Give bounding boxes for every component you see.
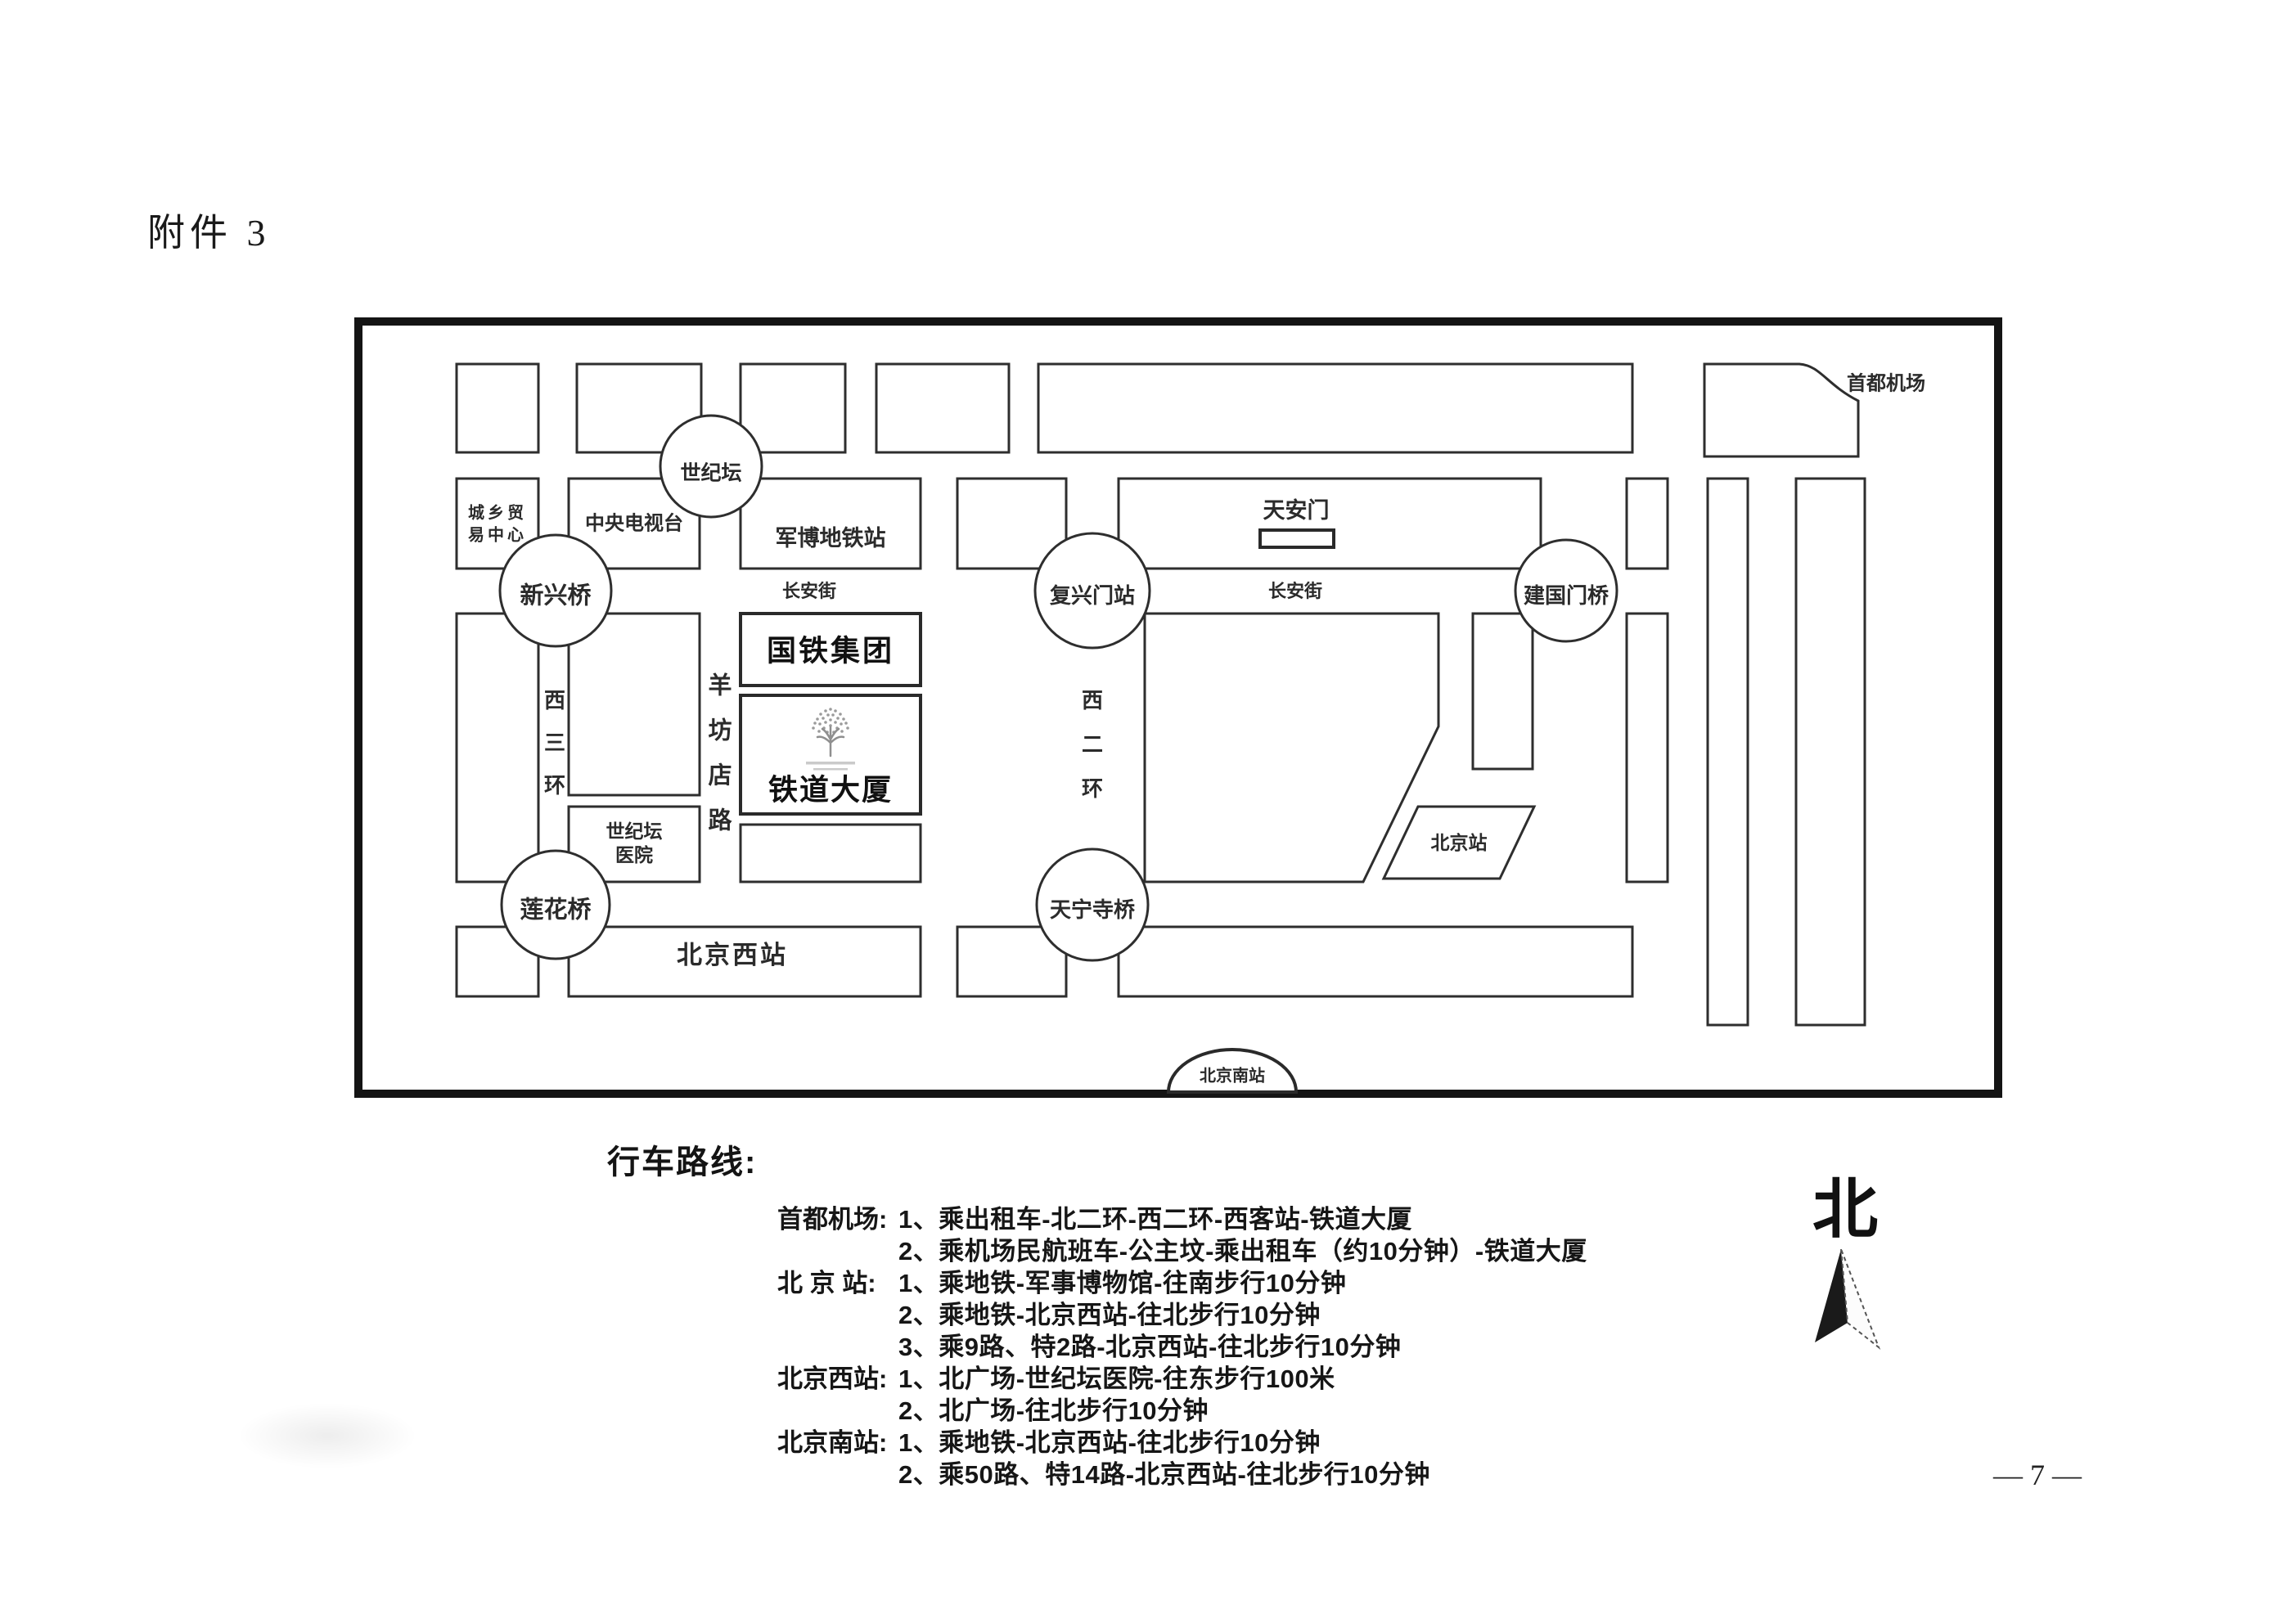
tiananmen-label: 天安门: [1263, 498, 1330, 523]
tiedao-mansion-label: 铁道大厦: [768, 773, 893, 807]
city-block: [1473, 614, 1533, 769]
cctv-label: 中央电视台: [585, 511, 683, 534]
city-block: [457, 614, 538, 882]
north-label: 北: [1784, 1157, 1907, 1252]
compass: 北: [1784, 1157, 1923, 1369]
direction-station: 首都机场:: [777, 1198, 898, 1235]
beijing-station-label: 北京站: [1431, 832, 1488, 853]
beijing-west-station-label: 北京西站: [677, 941, 788, 969]
changan-street-west-label: 长安街: [782, 581, 836, 601]
direction-row: 首都机场: 1、乘出租车-北二环-西二环-西客站-铁道大厦: [777, 1201, 1587, 1233]
xisanhuan-char: 环: [544, 773, 565, 798]
junbo-subway-block: [741, 479, 921, 569]
direction-row: 北京西站: 1、北广场-世纪坛医院-往东步行100米: [777, 1360, 1587, 1392]
xierhuan-char: 环: [1082, 776, 1103, 801]
city-block: [1627, 614, 1668, 882]
city-block: [876, 364, 1009, 452]
attachment-label: 附件 3: [147, 203, 271, 257]
direction-row: 北 京 站: 1、乘地铁-军事博物馆-往南步行10分钟: [777, 1265, 1587, 1297]
xinxingqiao-label: 新兴桥: [520, 582, 591, 609]
hospital-label-line2: 医院: [615, 844, 653, 865]
city-block: [569, 614, 700, 795]
direction-row: 2、乘50路、特14路-北京西站-往北步行10分钟: [777, 1456, 1587, 1488]
city-block: [457, 364, 538, 452]
yangfangdianlu-char: 羊: [708, 672, 732, 699]
city-block: [741, 364, 845, 452]
tiananmen-block: [1119, 479, 1541, 569]
direction-row: 3、乘9路、特2路-北京西站-往北步行10分钟: [777, 1329, 1587, 1360]
directions-list: 首都机场: 1、乘出租车-北二环-西二环-西客站-铁道大厦 2、乘机场民航班车-…: [777, 1201, 1587, 1488]
xierhuan-char: 二: [1082, 732, 1103, 757]
tianningsiqiao-label: 天宁寺桥: [1050, 897, 1136, 922]
lianhuaqiao-label: 莲花桥: [520, 897, 591, 924]
map-svg: 世纪坛 新兴桥 复兴门站 建国门桥 莲花桥 天宁寺桥 城乡贸 易中心 中央电视台…: [354, 317, 2002, 1098]
chengxiang-label-line1: 城乡贸: [468, 502, 527, 522]
capital-airport-label: 首都机场: [1847, 371, 1925, 394]
xisanhuan-char: 三: [544, 731, 565, 755]
yangfangdianlu-char: 坊: [708, 717, 732, 744]
direction-station: 北 京 站:: [777, 1262, 898, 1299]
direction-row: 2、乘地铁-北京西站-往北步行10分钟: [777, 1297, 1587, 1329]
scan-smudge: [237, 1403, 417, 1468]
xierhuan-char: 西: [1082, 688, 1103, 713]
city-block: [1627, 479, 1668, 569]
hospital-label-line1: 世纪坛: [606, 820, 663, 842]
tiananmen-gate-icon: [1260, 530, 1334, 547]
fuxingmen-label: 复兴门站: [1050, 583, 1135, 608]
direction-row: 2、北广场-往北步行10分钟: [777, 1392, 1587, 1424]
yangfangdianlu-char: 路: [708, 807, 732, 834]
junbo-station-label: 军博地铁站: [776, 525, 886, 551]
yangfangdianlu-char: 店: [708, 762, 732, 789]
rail-strip: [1708, 479, 1748, 1025]
shijitan-label: 世纪坛: [680, 461, 741, 485]
compass-needle-icon: [1784, 1243, 1923, 1365]
changan-street-east-label: 长安街: [1268, 581, 1322, 601]
beijing-south-station-label: 北京南站: [1200, 1065, 1265, 1085]
directions-heading: 行车路线:: [607, 1135, 757, 1183]
direction-row: 2、乘机场民航班车-公主坟-乘出租车（约10分钟）-铁道大厦: [777, 1233, 1587, 1265]
chengxiang-label-line2: 易中心: [468, 524, 527, 544]
city-block: [741, 825, 921, 882]
direction-station: 北京南站:: [777, 1422, 898, 1459]
city-block: [1119, 927, 1632, 996]
jianguomen-label: 建国门桥: [1524, 583, 1609, 608]
direction-route: 2、乘50路、特14路-北京西站-往北步行10分钟: [898, 1454, 1430, 1490]
document-page: { "page": { "attachment": "附件 3", "page_…: [0, 0, 2296, 1623]
direction-station: 北京西站:: [777, 1358, 898, 1395]
direction-row: 北京南站: 1、乘地铁-北京西站-往北步行10分钟: [777, 1424, 1587, 1456]
guotie-group-label: 国铁集团: [767, 634, 894, 668]
xisanhuan-char: 西: [544, 688, 565, 713]
location-map: 世纪坛 新兴桥 复兴门站 建国门桥 莲花桥 天宁寺桥 城乡贸 易中心 中央电视台…: [354, 317, 2002, 1098]
rail-strip: [1796, 479, 1865, 1025]
page-number: — 7 —: [1939, 1458, 2136, 1492]
city-block: [1038, 364, 1632, 452]
